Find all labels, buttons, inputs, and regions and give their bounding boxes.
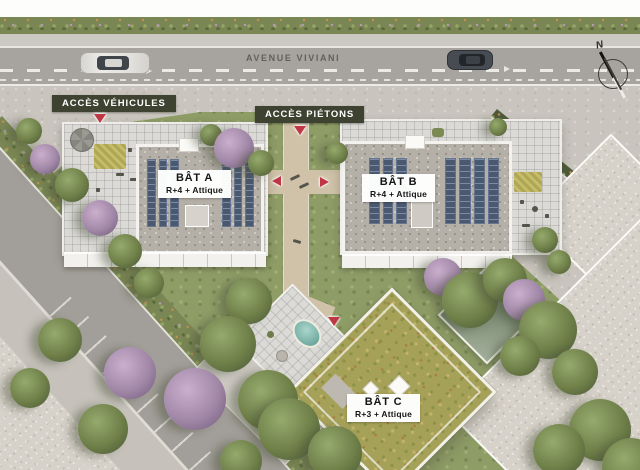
flowering-tree xyxy=(164,368,226,430)
road-name-label: AVENUE VIVIANI xyxy=(246,53,340,63)
tree xyxy=(248,150,274,176)
terrace-furniture xyxy=(545,214,549,218)
compass: N xyxy=(588,40,640,102)
vegetation-strip-north xyxy=(0,17,640,34)
tree xyxy=(10,368,50,408)
top-margin xyxy=(0,0,640,17)
building-a-floors: R+4 + Attique xyxy=(166,185,223,195)
access-vehicles-label: ACCÈS VÉHICULES xyxy=(52,95,176,112)
building-c-name: BÂT C xyxy=(355,396,412,408)
compass-north-label: N xyxy=(595,39,605,51)
access-pedestrians-label: ACCÈS PIÉTONS xyxy=(255,106,364,123)
solar-panel-array xyxy=(445,158,499,224)
avenue-viviani-road: AVENUE VIVIANI xyxy=(0,46,640,84)
building-c-label: BÂT C R+3 + Attique xyxy=(347,394,420,422)
tree xyxy=(533,424,585,470)
tree xyxy=(38,318,82,362)
marker-entrance-b xyxy=(320,177,329,187)
lawn-patch xyxy=(94,144,126,169)
building-a-label: BÂT A R+4 + Attique xyxy=(158,170,231,198)
flowering-tree xyxy=(82,200,118,236)
tree xyxy=(552,349,598,395)
marker-entrance-a xyxy=(272,176,281,186)
flowering-tree xyxy=(30,144,60,174)
planter xyxy=(267,331,274,338)
building-b-label: BÂT B R+4 + Attique xyxy=(362,174,435,202)
roof-access-box xyxy=(179,138,199,152)
terrace-furniture xyxy=(522,224,530,227)
tree xyxy=(547,250,571,274)
deck-circle xyxy=(276,350,288,362)
lawn-patch xyxy=(514,172,542,192)
lane-marking-edge xyxy=(0,79,640,81)
tree xyxy=(489,118,507,136)
parasol xyxy=(70,128,94,152)
pedestrian-path xyxy=(283,116,309,308)
terrace-furniture xyxy=(128,148,132,152)
terrace-furniture xyxy=(116,173,124,176)
tree xyxy=(200,316,256,372)
tree xyxy=(78,404,128,454)
stair-shaft xyxy=(185,205,209,227)
tree xyxy=(326,142,348,164)
building-a-name: BÂT A xyxy=(166,172,223,184)
building-b-name: BÂT B xyxy=(370,176,427,188)
terrace-furniture xyxy=(96,188,100,192)
marker-entrance-c xyxy=(328,317,340,326)
tree xyxy=(16,118,42,144)
car-white xyxy=(80,52,150,74)
building-a-balconies xyxy=(64,252,266,267)
tree xyxy=(500,336,540,376)
site-plan: AVENUE VIVIANI xyxy=(0,0,640,470)
flowering-tree xyxy=(104,347,156,399)
marker-access-pedestrians xyxy=(294,126,306,135)
tree xyxy=(532,227,558,253)
tree xyxy=(55,168,89,202)
terrace-furniture xyxy=(520,200,524,204)
lane-arrow xyxy=(504,66,510,72)
terrace-furniture xyxy=(532,206,538,212)
tree xyxy=(134,268,164,298)
building-b-floors: R+4 + Attique xyxy=(370,189,427,199)
marker-access-vehicles xyxy=(94,114,106,123)
tree xyxy=(108,234,142,268)
car-dark xyxy=(447,50,493,70)
sidewalk-north xyxy=(0,34,640,46)
planter xyxy=(432,128,444,137)
building-c-floors: R+3 + Attique xyxy=(355,409,412,419)
roof-access-box xyxy=(405,135,425,149)
stair-shaft xyxy=(411,200,433,228)
